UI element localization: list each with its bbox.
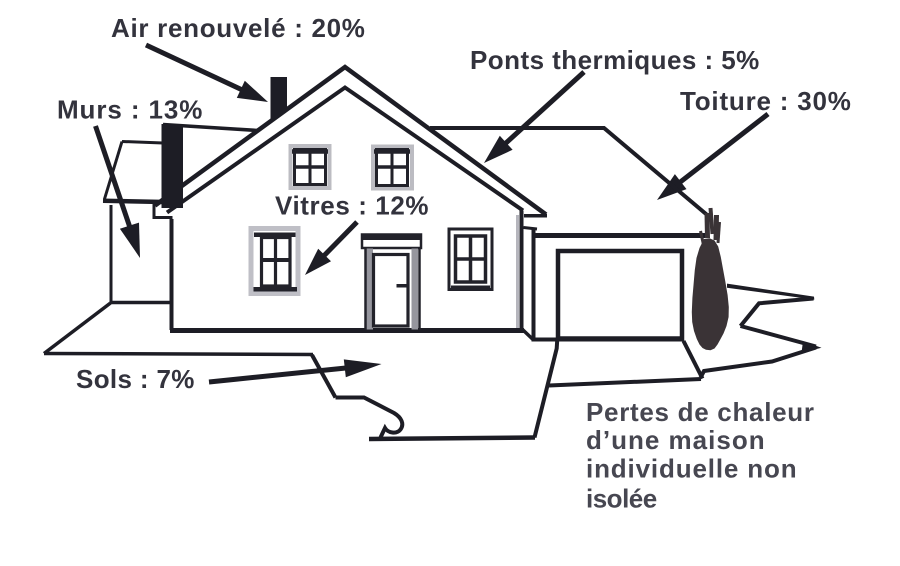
svg-text:Murs : 13%: Murs : 13%	[57, 95, 203, 125]
svg-text:Pertes de chaleur: Pertes de chaleur	[586, 397, 815, 427]
svg-text:Toiture : 30%: Toiture : 30%	[680, 86, 852, 116]
svg-text:Air renouvelé : 20%: Air renouvelé : 20%	[111, 13, 366, 43]
svg-text:Vitres : 12%: Vitres : 12%	[275, 191, 429, 221]
svg-text:Sols : 7%: Sols : 7%	[76, 364, 195, 394]
svg-text:Ponts thermiques : 5%: Ponts thermiques : 5%	[470, 45, 760, 75]
svg-text:isolée: isolée	[586, 484, 657, 514]
svg-text:individuelle non: individuelle non	[586, 454, 798, 484]
svg-text:d’une maison: d’une maison	[586, 425, 766, 455]
